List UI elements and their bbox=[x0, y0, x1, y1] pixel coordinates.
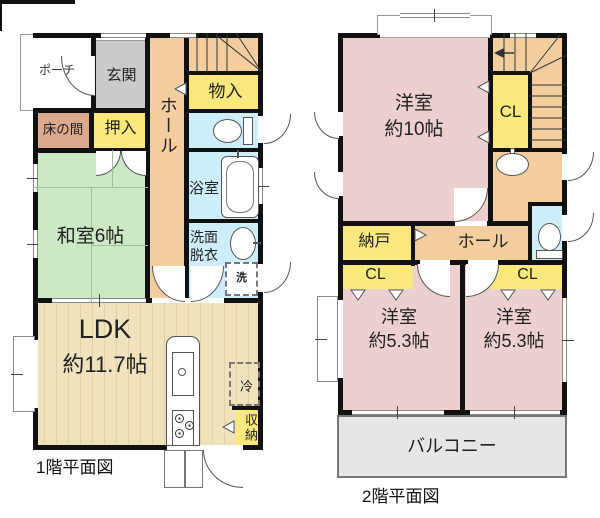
stove-burner-icon bbox=[185, 421, 194, 430]
senmen-outside-door-arc bbox=[264, 262, 291, 293]
door-gap bbox=[152, 298, 224, 303]
washbasin2-faucet-icon bbox=[510, 148, 515, 154]
monoire-door-triangle-icon bbox=[174, 82, 187, 96]
window-tick bbox=[27, 178, 38, 179]
bay-window-gap bbox=[380, 33, 490, 38]
hall2-window-arc bbox=[568, 152, 594, 181]
yo10-closet-triangle-icon bbox=[477, 80, 490, 94]
label-balcony: バルコニー bbox=[337, 436, 567, 457]
label-cl-right: CL bbox=[490, 266, 565, 284]
sliding-door-tick bbox=[99, 294, 100, 307]
sliding-door bbox=[470, 410, 560, 415]
ldk-terrace-door-arc bbox=[203, 450, 243, 488]
label-hall2: ホール bbox=[438, 232, 528, 252]
toilet1-bowl-icon bbox=[213, 119, 242, 143]
washbasin2-icon bbox=[496, 153, 529, 176]
entry-step bbox=[185, 450, 203, 488]
shunou-door-triangle-icon bbox=[222, 420, 235, 434]
sliding-door bbox=[352, 410, 444, 415]
label-oshiire: 押入 bbox=[93, 120, 148, 138]
bath-faucet-icon bbox=[237, 150, 239, 158]
label-shunou: 収納 bbox=[242, 413, 257, 445]
bathtub-inner-icon bbox=[226, 161, 254, 213]
cl-left-triangle-icon bbox=[388, 289, 404, 301]
window-tick bbox=[315, 339, 327, 340]
yo10-window-arc bbox=[314, 112, 339, 139]
sliding-door-tick bbox=[397, 406, 398, 419]
door-gap bbox=[258, 116, 263, 143]
toilet2-tank-icon bbox=[536, 250, 563, 259]
stove-burner-icon bbox=[175, 414, 184, 423]
label-porch: ポーチ bbox=[26, 64, 88, 78]
toilet2-door-arc bbox=[568, 213, 594, 242]
stairs2-icon bbox=[492, 33, 567, 152]
window-tick bbox=[258, 186, 269, 187]
window bbox=[400, 13, 470, 18]
floorplan-image: ポーチ 玄関 ホール 物入 床の間 押入 和室6帖 浴室 洗面 脱衣 洗 LDK… bbox=[0, 0, 600, 518]
cl-right-triangle-icon bbox=[540, 289, 556, 301]
nando-door-triangle-icon bbox=[414, 228, 427, 242]
label-cl-left: CL bbox=[338, 266, 413, 284]
toilet2-bowl-icon bbox=[538, 223, 561, 251]
caption-floor2: 2階平面図 bbox=[362, 487, 439, 507]
label-fridge: 冷 bbox=[240, 380, 253, 395]
tatami-line bbox=[112, 150, 113, 187]
label-yo53-left-line2: 約5.3帖 bbox=[338, 331, 460, 352]
label-hall1: ホール bbox=[157, 96, 178, 208]
label-genkan: 玄関 bbox=[95, 67, 148, 84]
label-ldk-line2: 約11.7帖 bbox=[20, 352, 190, 377]
door-gap bbox=[455, 221, 487, 226]
label-yoshitsu10-line2: 約10帖 bbox=[338, 119, 490, 141]
toilet1-door-arc bbox=[264, 114, 291, 144]
sliding-door-tick bbox=[514, 406, 515, 419]
label-ldk-line1: LDK bbox=[30, 314, 180, 345]
door-gap bbox=[258, 264, 263, 292]
label-yo53-right-line1: 洋室 bbox=[464, 307, 564, 328]
label-senmen-line1: 洗面 bbox=[190, 229, 218, 245]
floor2-plan: 洋室 約10帖 CL 納戸 ホール CL CL 洋室 約5.3帖 洋室 約5.3… bbox=[0, 0, 600, 31]
washbasin-handle-icon bbox=[253, 242, 261, 244]
toilet1-tank-icon bbox=[243, 117, 253, 145]
label-yo53-right-line2: 約5.3帖 bbox=[464, 331, 564, 352]
caption-floor1: 1階平面図 bbox=[36, 458, 113, 478]
label-tokonoma: 床の間 bbox=[33, 122, 93, 138]
door-gap bbox=[562, 154, 567, 180]
label-yoshitsu10-line1: 洋室 bbox=[338, 93, 490, 115]
label-monoire: 物入 bbox=[188, 82, 263, 102]
label-nando: 納戸 bbox=[338, 233, 411, 251]
label-bath: 浴室 bbox=[189, 180, 219, 197]
label-senmen-line2: 脱衣 bbox=[190, 247, 218, 263]
window-tick bbox=[434, 9, 435, 22]
entry-step bbox=[164, 450, 185, 488]
window bbox=[101, 33, 146, 38]
stairs1-icon bbox=[188, 33, 263, 73]
stove-burner-icon bbox=[175, 429, 184, 438]
label-yo53-left-line1: 洋室 bbox=[338, 307, 460, 328]
door-gap bbox=[562, 215, 567, 241]
label-washitsu: 和室6帖 bbox=[33, 226, 148, 248]
cl-left-triangle-icon bbox=[350, 289, 366, 301]
yo10-window-arc bbox=[314, 172, 339, 199]
label-cl-stairs: CL bbox=[492, 102, 529, 122]
label-washer: 洗 bbox=[236, 272, 247, 285]
cl-right-triangle-icon bbox=[500, 289, 516, 301]
